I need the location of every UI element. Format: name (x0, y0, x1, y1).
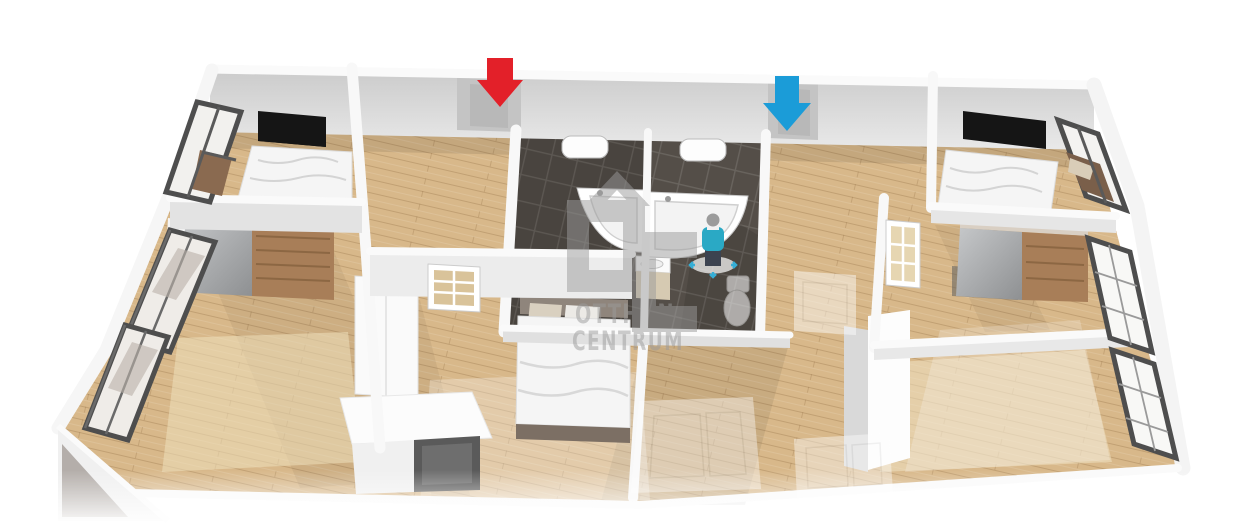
wall (760, 134, 766, 336)
cabinet-top (340, 392, 492, 444)
person-head (707, 214, 720, 227)
person-collar (707, 226, 719, 230)
floorplan-render: OTTHON CENTRUM (0, 0, 1241, 528)
wardrobe-wood-door (1022, 232, 1088, 302)
glass-door-right (886, 220, 920, 288)
wardrobe-mirror-door (956, 228, 1022, 300)
bottom-fade (0, 470, 1241, 528)
wall (931, 76, 933, 208)
toilet (724, 276, 750, 326)
floorplan-canvas: OTTHON CENTRUM (0, 0, 1241, 528)
watermark-line2: CENTRUM (572, 326, 684, 357)
glass-door-center (428, 264, 480, 312)
person-legs (705, 249, 721, 266)
bed (238, 146, 352, 202)
person-sweater (702, 227, 724, 251)
bathtub-faucet (665, 196, 671, 202)
ghost-cabinet (795, 272, 855, 334)
wardrobe-wood-door (252, 223, 334, 300)
